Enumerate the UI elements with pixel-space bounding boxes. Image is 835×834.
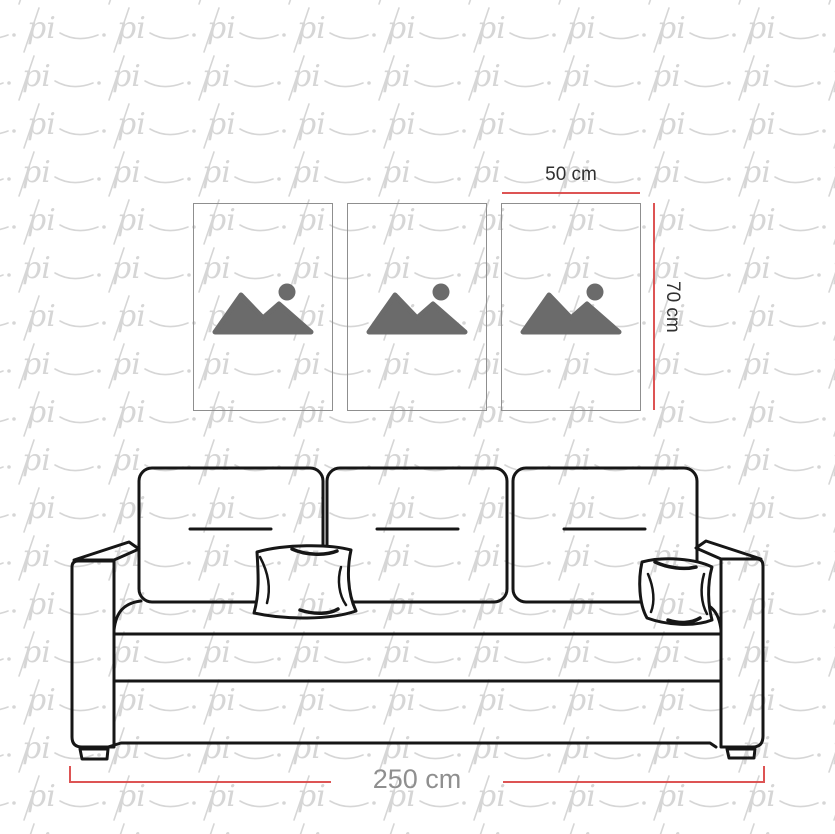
sofa-width-dimension-line-right: [503, 781, 765, 783]
sofa-foot-left: [80, 749, 108, 759]
throw-pillow-right: [640, 559, 712, 625]
sofa-foot-right: [727, 749, 755, 758]
sofa-width-dimension-line-left: [69, 781, 331, 783]
size-guide-canvas: 50 cm 70 cm: [0, 0, 835, 834]
sofa-armrest-left: [72, 542, 139, 747]
sofa-back-cushions: [139, 468, 697, 602]
sofa-illustration: [0, 0, 835, 834]
sofa-seat-base: [108, 601, 721, 747]
sofa-width-dimension-label: 250 cm: [331, 765, 503, 793]
throw-pillow-left: [254, 546, 356, 618]
